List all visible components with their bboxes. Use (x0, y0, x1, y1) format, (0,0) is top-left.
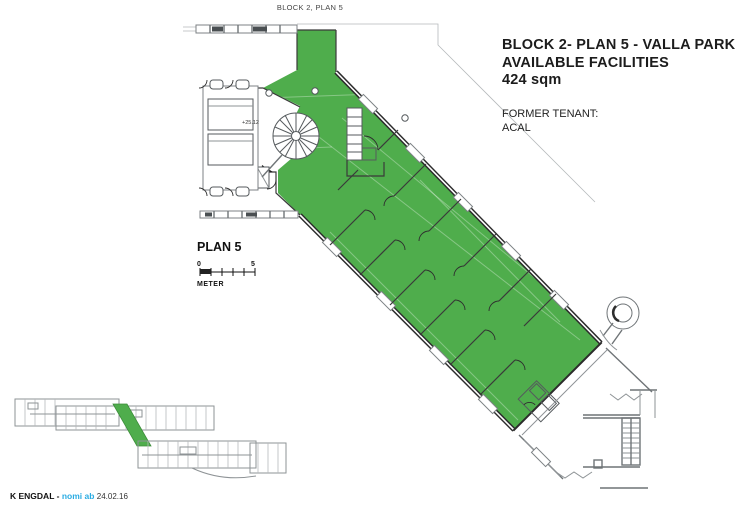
wc-block (199, 80, 258, 196)
footer-date: 24.02.16 (97, 492, 128, 501)
key-plan (15, 399, 286, 478)
plan-title-and-scale: PLAN 5 0 5 METER (197, 240, 255, 288)
window-band-lower (200, 211, 298, 218)
scale-end-label: 5 (251, 261, 255, 268)
plan-label: PLAN 5 (197, 240, 242, 254)
former-tenant-name: ACAL (502, 121, 735, 135)
key-plan-lower-wing (138, 441, 286, 478)
scale-start-label: 0 (197, 261, 201, 268)
scale-bar (200, 268, 255, 276)
footer-studio: nomi ab (62, 491, 95, 501)
title-line-availability: AVAILABLE FACILITIES (502, 55, 735, 73)
footer-author: K ENGDAL - (10, 491, 59, 501)
former-tenant-label: FORMER TENANT: (502, 107, 735, 121)
footer-credit: K ENGDAL - nomi ab 24.02.16 (10, 491, 128, 501)
title-block: BLOCK 2- PLAN 5 - VALLA PARK AVAILABLE F… (502, 37, 735, 136)
staircase-lower (622, 418, 640, 465)
title-line-project: BLOCK 2- PLAN 5 - VALLA PARK (502, 37, 735, 55)
window-band-top (196, 25, 297, 33)
stair-tower (600, 297, 639, 350)
scale-unit-label: METER (197, 281, 224, 288)
elevation-label: +25.12 (242, 120, 259, 126)
title-line-area: 424 sqm (502, 72, 735, 90)
drawing-sheet: BLOCK 2, PLAN 5 (0, 0, 754, 508)
